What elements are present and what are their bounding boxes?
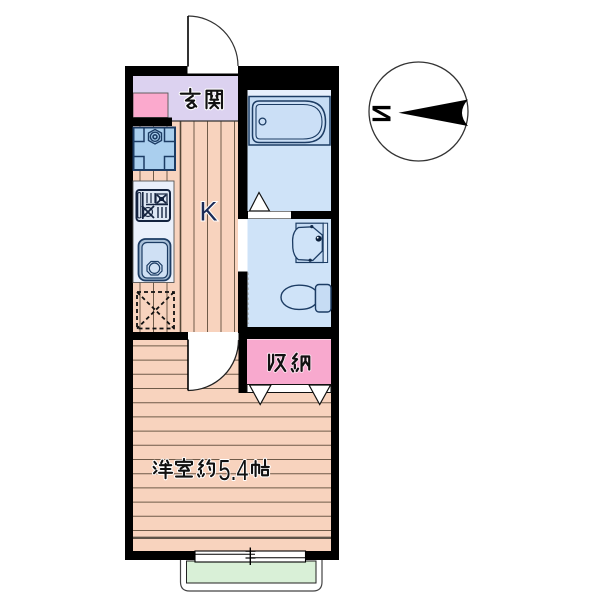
svg-text:K: K [199, 197, 217, 227]
svg-text:5.4: 5.4 [219, 455, 249, 487]
svg-text:N: N [367, 104, 397, 123]
